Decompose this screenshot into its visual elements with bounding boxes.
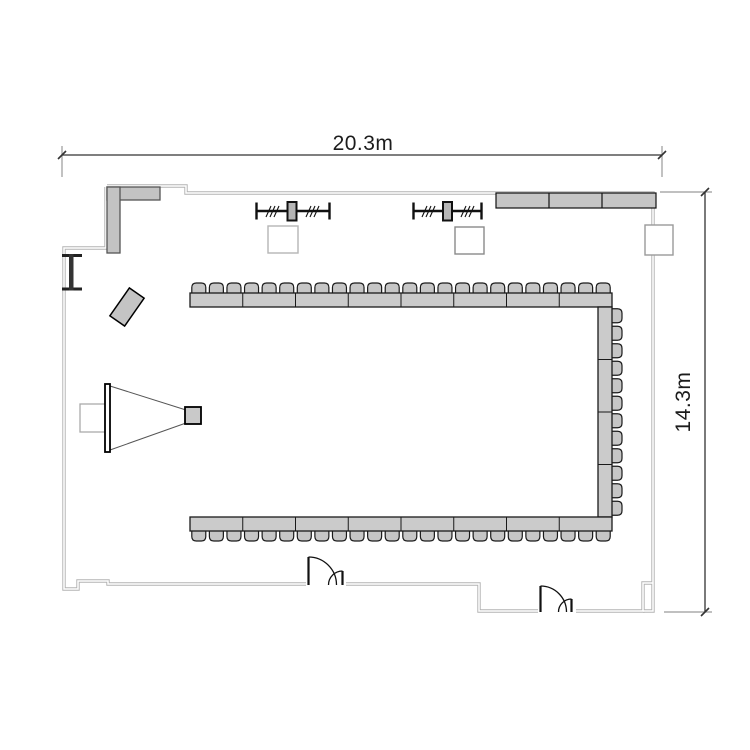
corner-counter <box>107 187 160 253</box>
partition-track-2 <box>413 202 482 221</box>
lectern <box>110 288 144 326</box>
table-run-right <box>598 307 622 517</box>
projection-screen <box>105 384 110 452</box>
door-1 <box>309 557 343 585</box>
dimension-width: 20.3m <box>58 132 666 177</box>
column-1 <box>268 226 298 253</box>
wall-cabinet-row <box>496 193 656 208</box>
furniture-layer <box>190 283 622 541</box>
table-run-top <box>190 283 612 307</box>
projection-cone <box>110 386 186 450</box>
partition-track-1 <box>256 202 330 221</box>
room-outline <box>64 186 653 611</box>
width-dimension-label: 20.3m <box>333 132 394 155</box>
projection-setup <box>80 384 201 452</box>
table-run-bottom <box>190 517 612 541</box>
column-2 <box>455 227 484 254</box>
height-dimension-label: 14.3m <box>672 372 695 433</box>
projector <box>185 407 201 424</box>
door-2 <box>541 586 572 612</box>
wall-niche <box>80 404 106 432</box>
column-3 <box>645 225 673 255</box>
floor-plan-canvas: 20.3m 14.3m <box>0 0 750 750</box>
